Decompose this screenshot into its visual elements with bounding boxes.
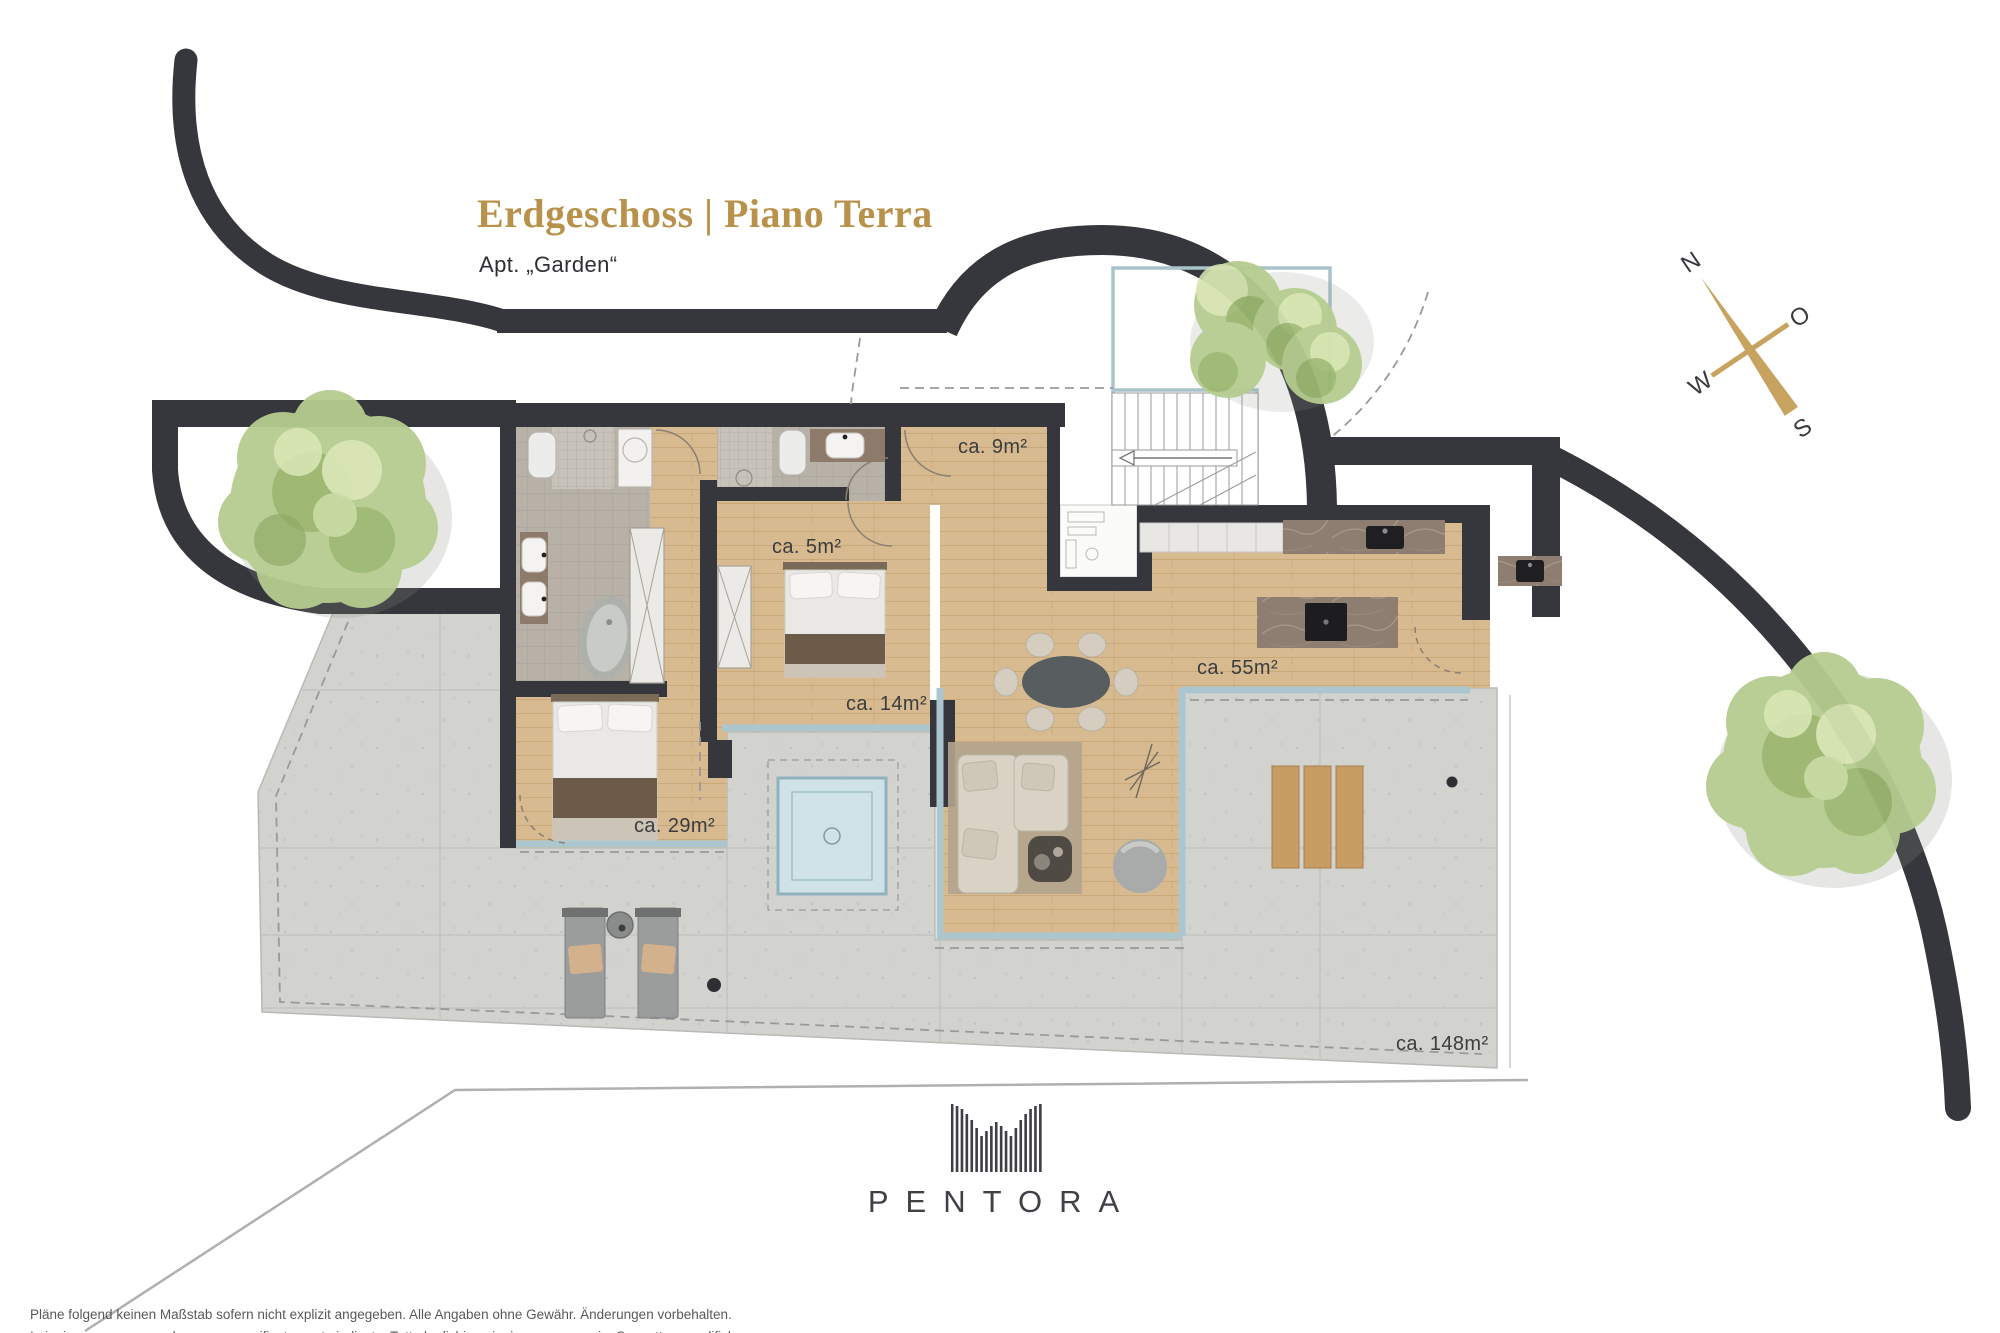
bed xyxy=(783,562,887,677)
compass-rose: N O S W xyxy=(1624,213,1868,480)
toilet xyxy=(528,432,556,478)
compass-south-label: S xyxy=(1789,413,1817,444)
compass-north-label: N xyxy=(1676,246,1705,278)
armchair xyxy=(1113,839,1167,893)
room-label-bath: ca. 5m² xyxy=(772,536,841,559)
site-edge-line xyxy=(85,1080,1528,1331)
logo: PENTORA xyxy=(858,1100,1136,1220)
compass-west-label: W xyxy=(1684,366,1718,401)
master-shower-tiles xyxy=(552,427,614,489)
wardrobe xyxy=(718,566,751,668)
page-subtitle: Apt. „Garden“ xyxy=(479,252,617,278)
technical-room xyxy=(1060,505,1137,577)
outdoor-table xyxy=(1272,766,1363,868)
disclaimer: Pläne folgend keinen Maßstab sofern nich… xyxy=(30,1304,747,1333)
bedroom-small-furniture xyxy=(718,562,887,677)
tree-cluster-courtyard xyxy=(1190,261,1374,412)
terrace-drain-dot xyxy=(707,978,721,992)
dining-chair xyxy=(994,668,1018,696)
room-label-bedroom-master: ca. 29m² xyxy=(634,815,715,838)
page-title: Erdgeschoss | Piano Terra xyxy=(477,190,933,237)
road-wall xyxy=(184,60,500,320)
room-label-terrace: ca. 148m² xyxy=(1396,1033,1489,1056)
coffee-table xyxy=(1028,836,1072,882)
kitchen-counter xyxy=(1283,520,1445,554)
pool xyxy=(778,778,886,894)
room-label-bedroom-small: ca. 14m² xyxy=(846,693,927,716)
dining-table xyxy=(1022,656,1110,708)
side-table xyxy=(607,912,633,938)
disclaimer-line-2: I piani non seguono scala se non specifi… xyxy=(30,1326,747,1333)
dining-chair xyxy=(1114,668,1138,696)
compass-needle xyxy=(1694,273,1798,416)
dining-chair xyxy=(1026,707,1054,731)
compass-east-label: O xyxy=(1785,300,1816,333)
kitchen-cabinets xyxy=(1140,523,1283,552)
dining-chair xyxy=(1078,633,1106,657)
toilet xyxy=(779,430,806,475)
floor-plan-page: N O S W Erdgeschoss | Piano Terra Apt. „… xyxy=(0,0,2000,1333)
wardrobe xyxy=(630,528,664,683)
tree-right xyxy=(1706,652,1952,888)
stairs xyxy=(1112,393,1258,505)
logo-wordmark: PENTORA xyxy=(868,1184,1136,1220)
dining-chair xyxy=(1078,707,1106,731)
disclaimer-line-1: Pläne folgend keinen Maßstab sofern nich… xyxy=(30,1304,747,1326)
room-label-living: ca. 55m² xyxy=(1197,657,1278,680)
terrace-drain-dot xyxy=(1447,777,1458,788)
dining-chair xyxy=(1026,633,1054,657)
room-label-entry: ca. 9m² xyxy=(958,436,1027,459)
logo-mark-icon xyxy=(951,1100,1043,1172)
lounger xyxy=(562,908,608,1018)
lounger xyxy=(635,908,681,1018)
